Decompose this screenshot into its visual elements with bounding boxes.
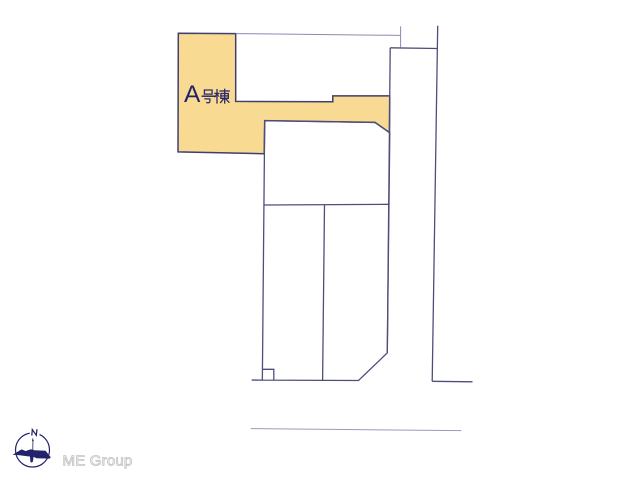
svg-text:A: A (184, 81, 201, 108)
svg-text:ME Group: ME Group (63, 452, 133, 469)
